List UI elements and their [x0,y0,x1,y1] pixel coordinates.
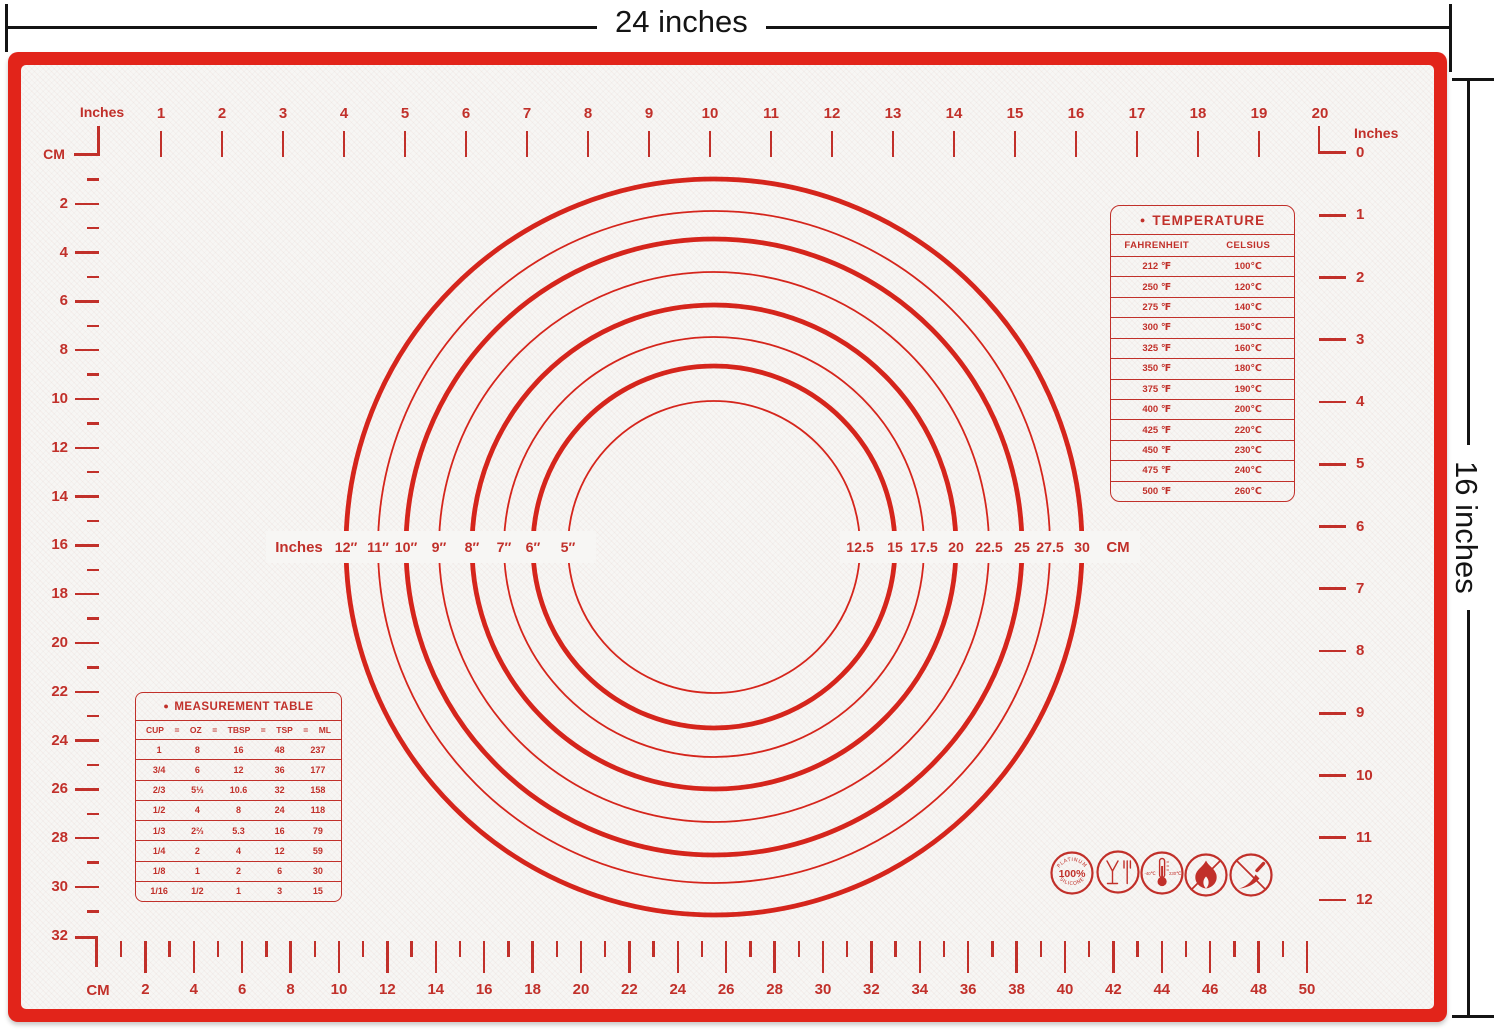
measurement-value: 6 [260,866,298,876]
right-ruler-number: 12 [1356,891,1396,909]
right-ruler-number: 6 [1356,518,1396,536]
bottom-ruler-number: 22 [611,981,647,999]
fahrenheit-value: 475 ℉ [1111,465,1203,476]
left-ruler-tick [87,325,99,328]
temperature-table: ●TEMPERATUREFAHRENHEITCELSIUS212 ℉100℃25… [1110,205,1295,502]
right-ruler-tick [1319,525,1346,528]
fahrenheit-value: 350 ℉ [1111,363,1203,374]
left-ruler-tick [75,544,99,547]
temperature-row: 425 ℉220℃ [1111,420,1294,440]
equals-sign: = [212,725,217,735]
bottom-ruler-number: 2 [127,981,163,999]
fahrenheit-value: 275 ℉ [1111,302,1203,313]
left-ruler-tick [75,593,99,596]
temperature-table-header: FAHRENHEITCELSIUS [1111,235,1294,257]
bottom-ruler-tick [991,941,994,957]
celsius-value: 140℃ [1203,302,1295,313]
top-ruler-number: 16 [1060,105,1092,123]
left-ruler-tick [75,447,99,450]
top-ruler-tick [1014,131,1017,157]
fahrenheit-value: 300 ℉ [1111,322,1203,333]
left-ruler-number: 32 [28,927,68,945]
measurement-row: 181648237 [136,740,341,760]
left-ruler-number: 30 [28,878,68,896]
thermometer-max-label: 230℃ [1169,871,1181,876]
bottom-ruler-tick [798,941,801,957]
top-ruler-number: 20 [1304,105,1336,123]
measurement-value: 1 [178,866,216,876]
left-ruler-tick [75,837,99,840]
left-ruler-tick [87,520,99,523]
right-ruler-tick [1319,836,1346,839]
measurement-value: 1 [140,745,178,755]
bullet-dot-icon: ● [163,702,169,711]
top-ruler-number: 9 [633,105,665,123]
bottom-ruler-number: 36 [950,981,986,999]
top-ruler-tick [709,131,712,157]
bottom-ruler-tick [386,941,389,973]
left-ruler-number: 6 [28,292,68,310]
measurement-value: 1/3 [140,826,178,836]
bottom-ruler-tick [967,941,970,973]
left-ruler-number: 12 [28,439,68,457]
celsius-value: 260℃ [1203,486,1295,497]
temperature-column-header: CELSIUS [1203,240,1295,251]
bottom-ruler-tick [289,941,292,973]
measurement-value: 1/4 [140,846,178,856]
top-left-corner-mark-v [97,126,100,156]
bottom-ruler-tick [410,941,413,957]
top-ruler-tick [587,131,590,157]
right-ruler-tick [1319,712,1346,715]
bottom-ruler-number: 24 [660,981,696,999]
fahrenheit-value: 375 ℉ [1111,384,1203,395]
top-ruler-tick [892,131,895,157]
left-ruler-number: 16 [28,536,68,554]
top-left-corner-mark-h [74,153,100,156]
celsius-value: 220℃ [1203,425,1295,436]
bottom-ruler-tick [1306,941,1309,973]
left-ruler-tick [87,813,99,816]
measurement-value: 118 [299,805,337,815]
measurement-column-header: TBSP [228,725,251,735]
bullet-dot-icon: ● [1140,216,1146,225]
bottom-ruler-tick [144,941,147,973]
bottom-ruler-number: 14 [418,981,454,999]
bottom-ruler-tick [749,941,752,957]
left-ruler-tick [87,617,99,620]
bottom-ruler-tick [604,941,607,957]
measurement-value: 12 [217,765,261,775]
top-ruler-number: 12 [816,105,848,123]
measurement-table-title-text: MEASUREMENT TABLE [174,701,313,713]
right-ruler-number: 3 [1356,331,1396,349]
right-ruler-number: 1 [1356,206,1396,224]
right-ruler-tick [1319,650,1346,653]
measurement-value: 32 [260,785,298,795]
celsius-value: 240℃ [1203,465,1295,476]
bottom-ruler-number: 10 [321,981,357,999]
left-ruler-number: 2 [28,195,68,213]
bottom-ruler-tick [1161,941,1164,973]
bottom-ruler-number: 44 [1144,981,1180,999]
top-ruler-number: 8 [572,105,604,123]
measurement-value: 1/16 [140,886,178,896]
measurement-value: 4 [178,805,216,815]
bottom-ruler-tick [1209,941,1212,973]
temperature-range-thermometer-icon: -40℃ 230℃ [1142,853,1183,894]
left-ruler-number: 18 [28,585,68,603]
bottom-ruler-tick [531,941,534,973]
temperature-row: 250 ℉120℃ [1111,277,1294,297]
measurement-row: 1/812630 [136,862,341,882]
top-ruler-number: 13 [877,105,909,123]
measurement-row: 2/35⅓10.632158 [136,781,341,801]
bottom-ruler-tick [652,941,655,957]
measurement-value: 237 [299,745,337,755]
left-ruler-number: 14 [28,488,68,506]
fahrenheit-value: 450 ℉ [1111,445,1203,456]
bottom-ruler-tick [507,941,510,957]
top-ruler-number: 5 [389,105,421,123]
bottom-ruler-tick [1136,941,1139,957]
food-safe-glass-fork-icon [1098,852,1139,893]
top-ruler-tick [1197,131,1200,157]
bottom-ruler-tick [265,941,268,957]
celsius-value: 160℃ [1203,343,1295,354]
platinum-silicone-badge-icon: PLATINUM SILICONE 100% [1052,853,1093,894]
measurement-value: 5.3 [217,826,261,836]
left-ruler-tick [87,276,99,279]
temperature-row: 400 ℉200℃ [1111,400,1294,420]
left-ruler-tick [87,764,99,767]
bottom-ruler-number: 16 [466,981,502,999]
right-ruler-tick [1319,774,1346,777]
left-ruler-tick [87,666,99,669]
left-ruler-tick [75,203,99,206]
temperature-row: 275 ℉140℃ [1111,298,1294,318]
top-ruler-number: 6 [450,105,482,123]
right-ruler-number: 11 [1356,829,1396,847]
measurement-value: 24 [260,805,298,815]
measurement-value: 2 [217,866,261,876]
measurement-column-header: ML [319,725,331,735]
temperature-table-title: ●TEMPERATURE [1111,206,1294,235]
temperature-row: 300 ℉150℃ [1111,318,1294,338]
bottom-ruler-number: 40 [1047,981,1083,999]
bottom-ruler-tick [773,941,776,973]
bottom-ruler-number: 34 [902,981,938,999]
left-ruler-number: 8 [28,341,68,359]
measurement-table: ●MEASUREMENT TABLECUP=OZ=TBSP=TSP=ML1816… [135,692,342,902]
temperature-row: 212 ℉100℃ [1111,257,1294,277]
bottom-ruler-tick [1040,941,1043,957]
left-ruler-tick [87,373,99,376]
measurement-row: 3/461236177 [136,760,341,780]
bottom-ruler-number: 18 [515,981,551,999]
top-ruler-tick [953,131,956,157]
top-right-corner-mark-v [1318,126,1321,154]
top-ruler-number: 17 [1121,105,1153,123]
top-right-corner-mark-h [1318,151,1346,154]
temperature-row: 350 ℉180℃ [1111,359,1294,379]
top-ruler-tick [404,131,407,157]
measurement-value: 12 [260,846,298,856]
left-ruler-tick [75,739,99,742]
bottom-ruler-tick [1015,941,1018,973]
bottom-left-corner-mark-v [95,936,98,967]
bottom-ruler-tick [1233,941,1236,957]
measurement-table-title: ●MEASUREMENT TABLE [136,693,341,721]
top-ruler-number: 15 [999,105,1031,123]
temperature-row: 450 ℉230℃ [1111,441,1294,461]
bottom-ruler-tick [314,941,317,957]
top-ruler-tick [1258,131,1261,157]
measurement-row: 1/32⅔5.31679 [136,821,341,841]
measurement-value: 2⅔ [178,826,216,836]
bottom-ruler-tick [217,941,220,957]
right-ruler-number: 2 [1356,269,1396,287]
right-ruler-tick [1319,214,1346,217]
celsius-value: 120℃ [1203,282,1295,293]
equals-sign: = [303,725,308,735]
measurement-row: 1/4241259 [136,841,341,861]
bottom-ruler-number: 48 [1241,981,1277,999]
bottom-ruler-number: 28 [757,981,793,999]
measurement-value: 1/2 [140,805,178,815]
top-ruler-number: 7 [511,105,543,123]
left-ruler-tick [87,178,99,181]
top-ruler-tick [770,131,773,157]
measurement-value: 1 [217,886,261,896]
measurement-value: 16 [260,826,298,836]
top-ruler-number: 11 [755,105,787,123]
measurement-value: 8 [217,805,261,815]
top-ruler-number: 18 [1182,105,1214,123]
celsius-value: 180℃ [1203,363,1295,374]
measurement-value: 10.6 [217,785,261,795]
measurement-column-header: TSP [276,725,293,735]
measurement-value: 2/3 [140,785,178,795]
bottom-ruler-tick [459,941,462,957]
top-ruler-number: 1 [145,105,177,123]
top-ruler-number: 10 [694,105,726,123]
right-ruler-number: 5 [1356,455,1396,473]
left-ruler-tick [87,861,99,864]
left-ruler-number: 28 [28,829,68,847]
top-ruler-number: 19 [1243,105,1275,123]
measurement-column-header: CUP [146,725,164,735]
right-ruler-tick [1319,276,1346,279]
bottom-ruler-tick [580,941,583,973]
fahrenheit-value: 500 ℉ [1111,486,1203,497]
bottom-ruler-tick [943,941,946,957]
bottom-ruler-tick [894,941,897,957]
top-ruler-tick [831,131,834,157]
thermometer-min-label: -40℃ [1144,871,1155,876]
right-ruler-tick [1319,401,1346,404]
no-flame-icon [1186,855,1227,896]
bottom-ruler-tick [725,941,728,973]
right-ruler-tick [1319,463,1346,466]
left-ruler-tick [87,422,99,425]
right-ruler-unit-label: Inches [1354,125,1398,141]
measurement-table-header: CUP=OZ=TBSP=TSP=ML [136,721,341,740]
measurement-column-header: OZ [190,725,202,735]
bottom-ruler-tick [1088,941,1091,957]
left-ruler-tick [87,569,99,572]
right-ruler-number: 7 [1356,580,1396,598]
measurement-value: 4 [217,846,261,856]
left-ruler-tick [87,910,99,913]
celsius-value: 230℃ [1203,445,1295,456]
bottom-ruler-number: 6 [224,981,260,999]
bottom-ruler-tick [919,941,922,973]
measurement-value: 2 [178,846,216,856]
temperature-column-header: FAHRENHEIT [1111,240,1203,251]
no-knife-icon [1231,855,1272,896]
top-ruler-tick [1075,131,1078,157]
measurement-value: 177 [299,765,337,775]
left-ruler-tick [75,788,99,791]
measurement-value: 1/2 [178,886,216,896]
celsius-value: 200℃ [1203,404,1295,415]
measurement-value: 16 [217,745,261,755]
measurement-value: 3 [260,886,298,896]
left-ruler-tick [75,495,99,498]
bottom-ruler-tick [1112,941,1115,973]
bottom-ruler-tick [701,941,704,957]
top-ruler-tick [526,131,529,157]
top-ruler-unit-label: Inches [70,104,134,120]
measurement-row: 1/161/21315 [136,882,341,901]
bottom-ruler-number: 38 [999,981,1035,999]
left-ruler-tick [87,471,99,474]
bottom-ruler-number: 26 [708,981,744,999]
right-ruler-tick [1319,338,1346,341]
left-ruler-tick [87,715,99,718]
bottom-ruler-tick [870,941,873,973]
fahrenheit-value: 325 ℉ [1111,343,1203,354]
measurement-value: 48 [260,745,298,755]
top-ruler-tick [1136,131,1139,157]
top-ruler-tick [221,131,224,157]
bottom-ruler-number: 46 [1192,981,1228,999]
bottom-ruler-number: 8 [273,981,309,999]
measurement-value: 8 [178,745,216,755]
bottom-ruler-tick [1064,941,1067,973]
top-ruler-tick [160,131,163,157]
top-ruler-tick [465,131,468,157]
fahrenheit-value: 425 ℉ [1111,425,1203,436]
bottom-ruler-number: 30 [805,981,841,999]
right-ruler-number: 9 [1356,704,1396,722]
equals-sign: = [174,725,179,735]
top-ruler-number: 2 [206,105,238,123]
pastry-mat-product-image: 24 inches 16 inches Inches5″12.56″157″17… [0,0,1500,1031]
right-ruler-tick [1319,899,1346,902]
top-ruler-number: 4 [328,105,360,123]
measurement-row: 1/24824118 [136,801,341,821]
celsius-value: 190℃ [1203,384,1295,395]
fahrenheit-value: 212 ℉ [1111,261,1203,272]
measurement-value: 79 [299,826,337,836]
left-ruler-tick [75,349,99,352]
left-ruler-tick [75,300,99,303]
left-ruler-tick [75,398,99,401]
temperature-row: 475 ℉240℃ [1111,461,1294,481]
left-ruler-tick [75,251,99,254]
measurement-value: 5⅓ [178,785,216,795]
bottom-ruler-number: 50 [1289,981,1325,999]
right-ruler-number: 4 [1356,393,1396,411]
left-ruler-tick [75,691,99,694]
temperature-row: 500 ℉260℃ [1111,482,1294,501]
bottom-ruler-tick [168,941,171,957]
top-ruler-number: 3 [267,105,299,123]
bottom-ruler-tick [338,941,341,973]
right-ruler-number: 8 [1356,642,1396,660]
fahrenheit-value: 400 ℉ [1111,404,1203,415]
left-ruler-number: 24 [28,732,68,750]
bottom-ruler-number: 42 [1095,981,1131,999]
top-ruler-number: 14 [938,105,970,123]
celsius-value: 100℃ [1203,261,1295,272]
left-ruler-number: 22 [28,683,68,701]
bottom-ruler-number: 20 [563,981,599,999]
left-ruler-number: 10 [28,390,68,408]
right-ruler-number: 10 [1356,767,1396,785]
measurement-value: 36 [260,765,298,775]
bottom-ruler-tick [556,941,559,957]
bottom-ruler-number: 32 [853,981,889,999]
bottom-ruler-tick [483,941,486,973]
left-ruler-tick [75,642,99,645]
bottom-ruler-tick [120,941,123,957]
bottom-ruler-tick [435,941,438,973]
left-ruler-number: 26 [28,780,68,798]
measurement-value: 6 [178,765,216,775]
left-ruler-unit-label: CM [38,146,70,162]
right-ruler-number: 0 [1356,144,1396,162]
bottom-ruler-tick [628,941,631,973]
bottom-ruler-tick [846,941,849,957]
bottom-ruler-tick [822,941,825,973]
top-ruler-tick [648,131,651,157]
measurement-value: 30 [299,866,337,876]
temperature-row: 375 ℉190℃ [1111,380,1294,400]
celsius-value: 150℃ [1203,322,1295,333]
left-ruler-tick [87,227,99,230]
left-ruler-number: 20 [28,634,68,652]
bottom-ruler-tick [1282,941,1285,957]
equals-sign: = [261,725,266,735]
bottom-ruler-tick [1185,941,1188,957]
measurement-value: 59 [299,846,337,856]
measurement-value: 1/8 [140,866,178,876]
certification-icons: PLATINUM SILICONE 100% -40℃ 230℃ [1040,845,1280,905]
temperature-table-title-text: TEMPERATURE [1152,213,1265,228]
top-ruler-tick [282,131,285,157]
temperature-row: 325 ℉160℃ [1111,339,1294,359]
measurement-value: 158 [299,785,337,795]
top-ruler-tick [343,131,346,157]
bottom-ruler-number: 4 [176,981,212,999]
bottom-ruler-tick [677,941,680,973]
fahrenheit-value: 250 ℉ [1111,282,1203,293]
bottom-ruler-tick [193,941,196,973]
left-ruler-tick [75,886,99,889]
